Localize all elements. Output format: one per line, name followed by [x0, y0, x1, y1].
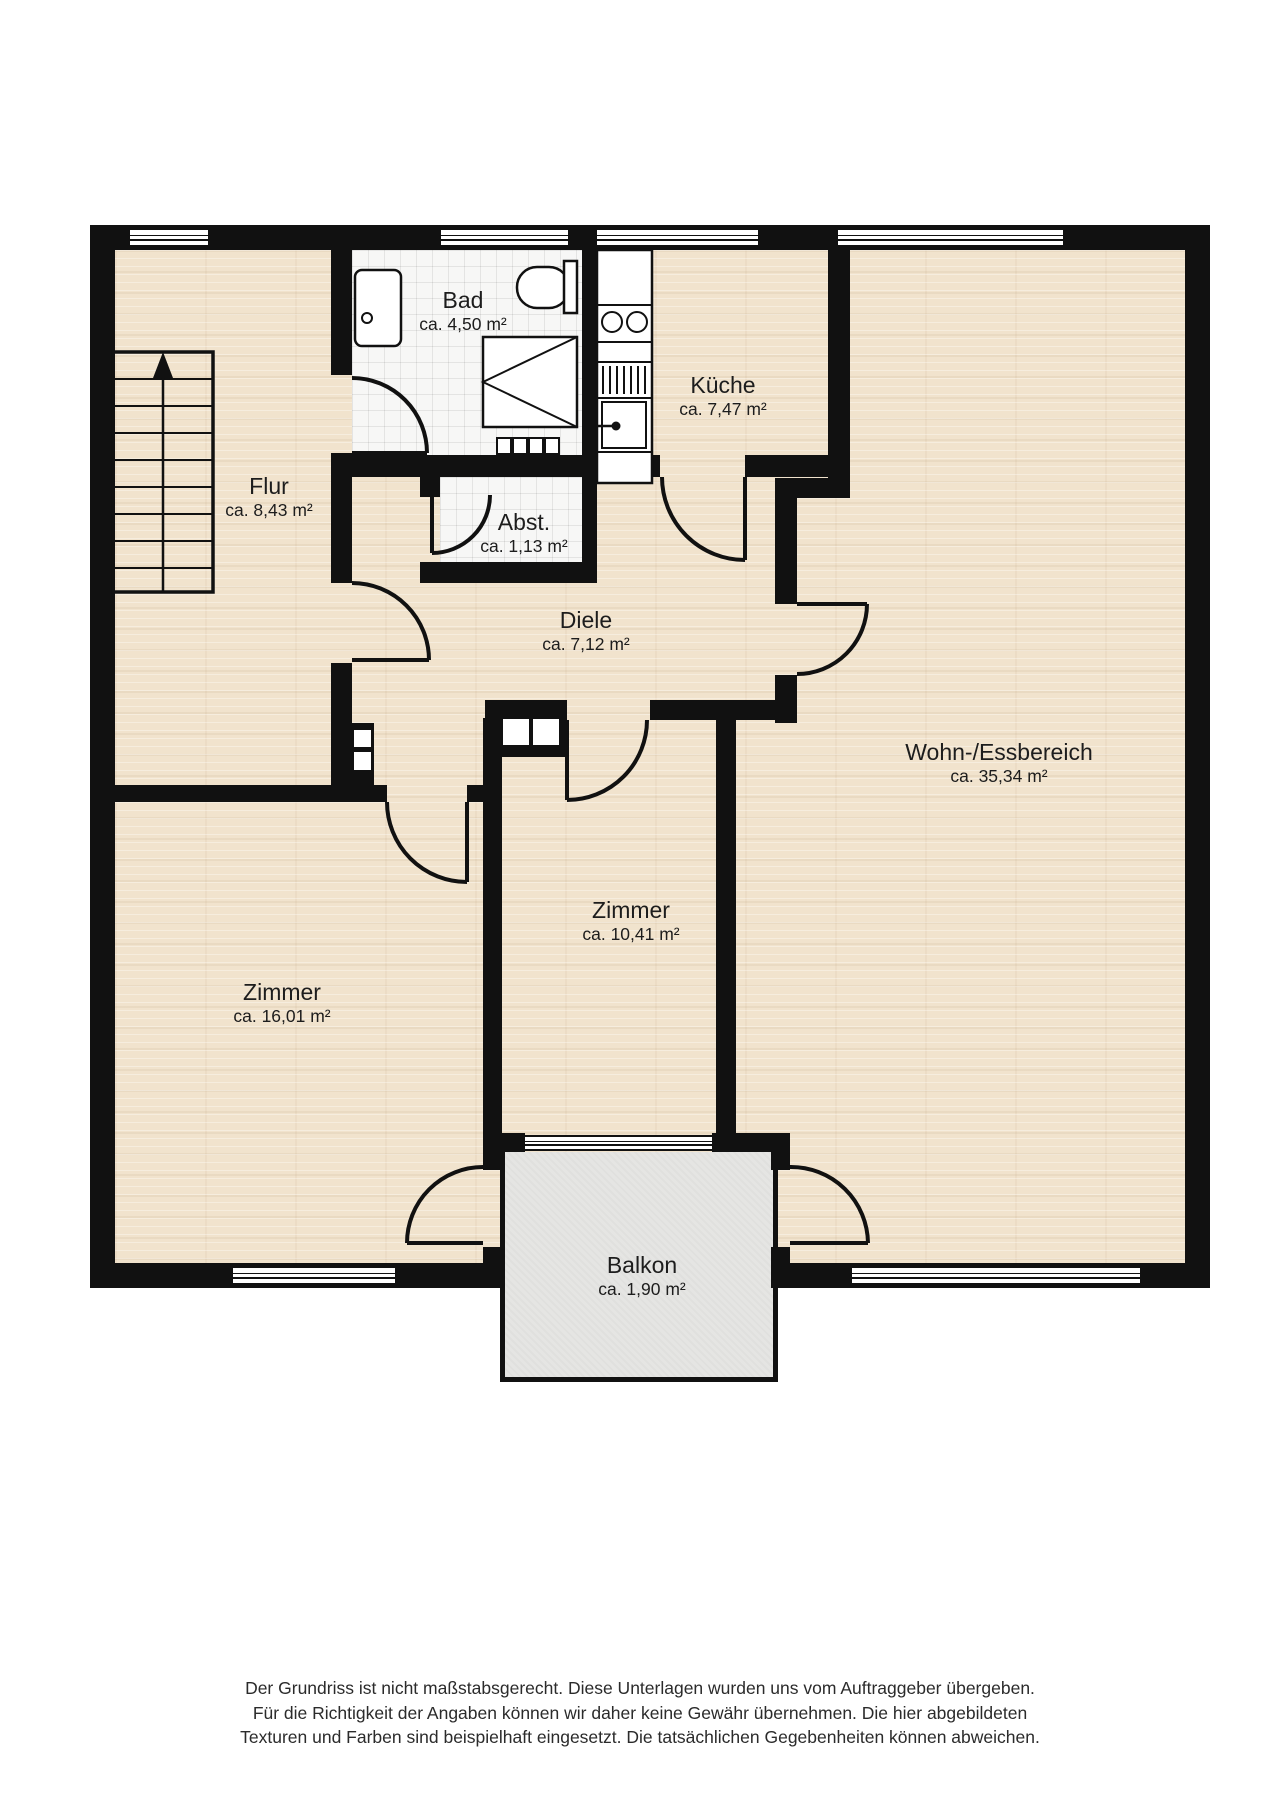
faucet — [612, 422, 621, 431]
door-balkon-rechts — [790, 1167, 868, 1243]
room-area: ca. 4,50 m² — [419, 314, 507, 335]
sink — [355, 270, 401, 346]
room-label-wohn-essbereich: Wohn-/Essbereich ca. 35,34 m² — [905, 739, 1093, 787]
disclaimer-line: Der Grundriss ist nicht maßstabsgerecht.… — [0, 1676, 1280, 1701]
room-label-diele: Diele ca. 7,12 m² — [542, 607, 630, 655]
door-kueche — [662, 477, 745, 560]
radiator — [497, 438, 559, 454]
room-label-bad: Bad ca. 4,50 m² — [419, 287, 507, 335]
door-balkon-links — [407, 1167, 483, 1243]
dishwasher — [603, 366, 645, 394]
room-area: ca. 1,90 m² — [598, 1279, 686, 1300]
room-area: ca. 7,12 m² — [542, 634, 630, 655]
room-label-kueche: Küche ca. 7,47 m² — [679, 372, 767, 420]
room-name: Küche — [679, 372, 767, 399]
room-name: Balkon — [598, 1252, 686, 1279]
toilet — [517, 267, 569, 308]
door-symbols — [352, 378, 868, 1243]
room-name: Flur — [225, 473, 313, 500]
room-label-abstellraum: Abst. ca. 1,13 m² — [480, 509, 568, 557]
door-zimmer-klein — [567, 720, 647, 800]
room-label-zimmer-gross: Zimmer ca. 16,01 m² — [233, 979, 330, 1027]
door-flur-diele — [352, 583, 429, 660]
room-area: ca. 1,13 m² — [480, 536, 568, 557]
stairs-direction-arrow — [153, 352, 173, 378]
room-name: Zimmer — [582, 897, 679, 924]
floor-plan: Flur ca. 8,43 m² Bad ca. 4,50 m² Küche c… — [0, 0, 1280, 1811]
room-area: ca. 10,41 m² — [582, 924, 679, 945]
staircase — [113, 352, 213, 592]
room-name: Diele — [542, 607, 630, 634]
toilet-tank — [564, 261, 577, 313]
door-zimmer-gross — [387, 802, 467, 882]
room-name: Bad — [419, 287, 507, 314]
room-area: ca. 8,43 m² — [225, 500, 313, 521]
disclaimer-text: Der Grundriss ist nicht maßstabsgerecht.… — [0, 1676, 1280, 1750]
room-label-flur: Flur ca. 8,43 m² — [225, 473, 313, 521]
room-name: Zimmer — [233, 979, 330, 1006]
room-area: ca. 35,34 m² — [905, 766, 1093, 787]
disclaimer-line: Texturen und Farben sind beispielhaft ei… — [0, 1725, 1280, 1750]
room-label-zimmer-klein: Zimmer ca. 10,41 m² — [582, 897, 679, 945]
disclaimer-line: Für die Richtigkeit der Angaben können w… — [0, 1701, 1280, 1726]
kitchen-counter — [597, 250, 652, 483]
door-bad — [352, 378, 427, 453]
room-name: Wohn-/Essbereich — [905, 739, 1093, 766]
room-area: ca. 16,01 m² — [233, 1006, 330, 1027]
shower — [483, 337, 577, 427]
door-wohnbereich — [797, 604, 867, 674]
room-area: ca. 7,47 m² — [679, 399, 767, 420]
room-name: Abst. — [480, 509, 568, 536]
room-label-balkon: Balkon ca. 1,90 m² — [598, 1252, 686, 1300]
